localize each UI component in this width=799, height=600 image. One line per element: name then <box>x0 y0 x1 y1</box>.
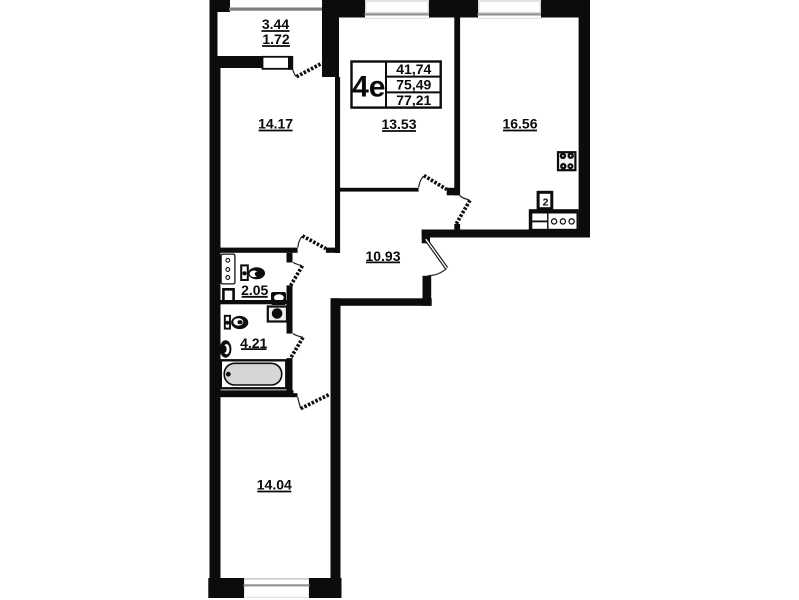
svg-text:13.53: 13.53 <box>381 116 416 132</box>
svg-text:41,74: 41,74 <box>396 61 431 77</box>
svg-text:1.72: 1.72 <box>262 31 289 47</box>
svg-text:14.04: 14.04 <box>257 477 292 493</box>
svg-text:14.17: 14.17 <box>258 116 293 132</box>
svg-text:2: 2 <box>543 197 549 209</box>
svg-text:3.44: 3.44 <box>262 16 289 32</box>
svg-text:75,49: 75,49 <box>396 77 431 93</box>
svg-text:16.56: 16.56 <box>502 116 537 132</box>
svg-text:77,21: 77,21 <box>396 92 431 108</box>
svg-text:4е: 4е <box>352 71 385 104</box>
svg-text:2.05: 2.05 <box>241 282 268 298</box>
